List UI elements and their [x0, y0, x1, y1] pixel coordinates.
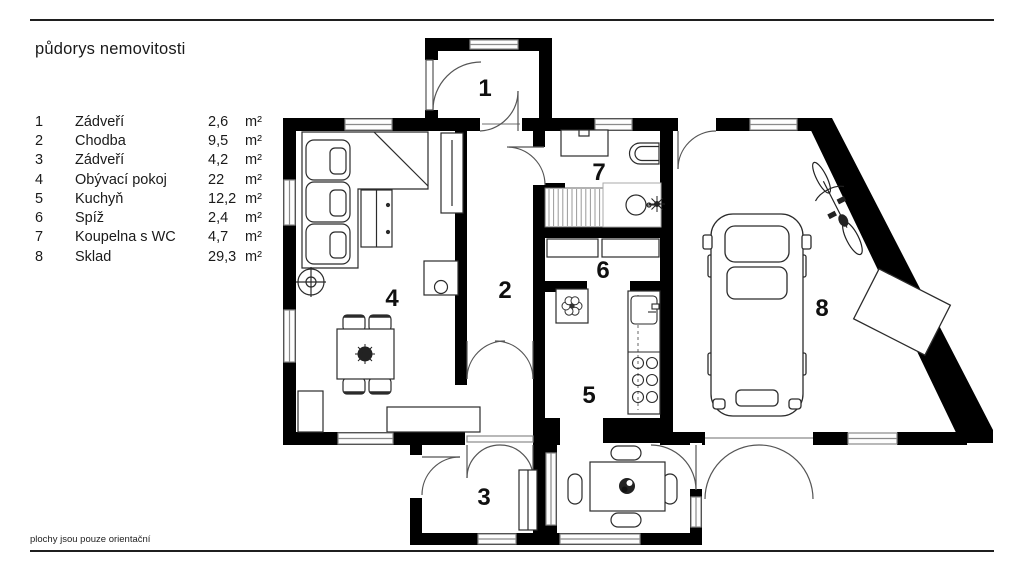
bowl-icon: [619, 478, 635, 494]
room-label-2: 2: [498, 277, 511, 304]
stairs-icon: [545, 188, 603, 227]
floor-plan-page: půdorys nemovitosti 1 Zádveří 2,6 m² 2 C…: [0, 0, 1024, 576]
nook-table-icon: [568, 446, 677, 527]
room-label-3: 3: [477, 484, 490, 511]
kitchen-counter-icon: [628, 291, 660, 414]
kitchen-sink-icon: [631, 296, 659, 324]
stove-icon: [424, 261, 458, 295]
floor-plan: 1 2 3 4 5 6 7 8: [0, 0, 1024, 576]
room-label-5: 5: [582, 382, 595, 409]
sideboard-icon: [387, 407, 480, 432]
door-arc: [433, 62, 481, 110]
car-icon: [703, 214, 811, 416]
flower-pot-icon: [556, 289, 588, 323]
room-label-7: 7: [592, 159, 605, 186]
footnote: plochy jsou pouze orientační: [30, 534, 150, 545]
washing-machine-icon: [561, 130, 608, 156]
room-label-8: 8: [815, 295, 828, 322]
room-label-6: 6: [596, 257, 609, 284]
shelf-icon: [547, 239, 659, 257]
room-label-4: 4: [385, 285, 399, 312]
floor-lamp-icon: [296, 267, 326, 297]
plant-icon: [355, 344, 375, 364]
coffee-table-icon: [361, 190, 392, 247]
toilet-icon: [630, 143, 660, 164]
dining-table-icon: [337, 315, 394, 394]
cabinet-icon: [441, 133, 463, 213]
room-label-1: 1: [478, 75, 491, 102]
corner-cabinet-icon: [298, 391, 323, 432]
radiator-icon: [519, 470, 537, 530]
